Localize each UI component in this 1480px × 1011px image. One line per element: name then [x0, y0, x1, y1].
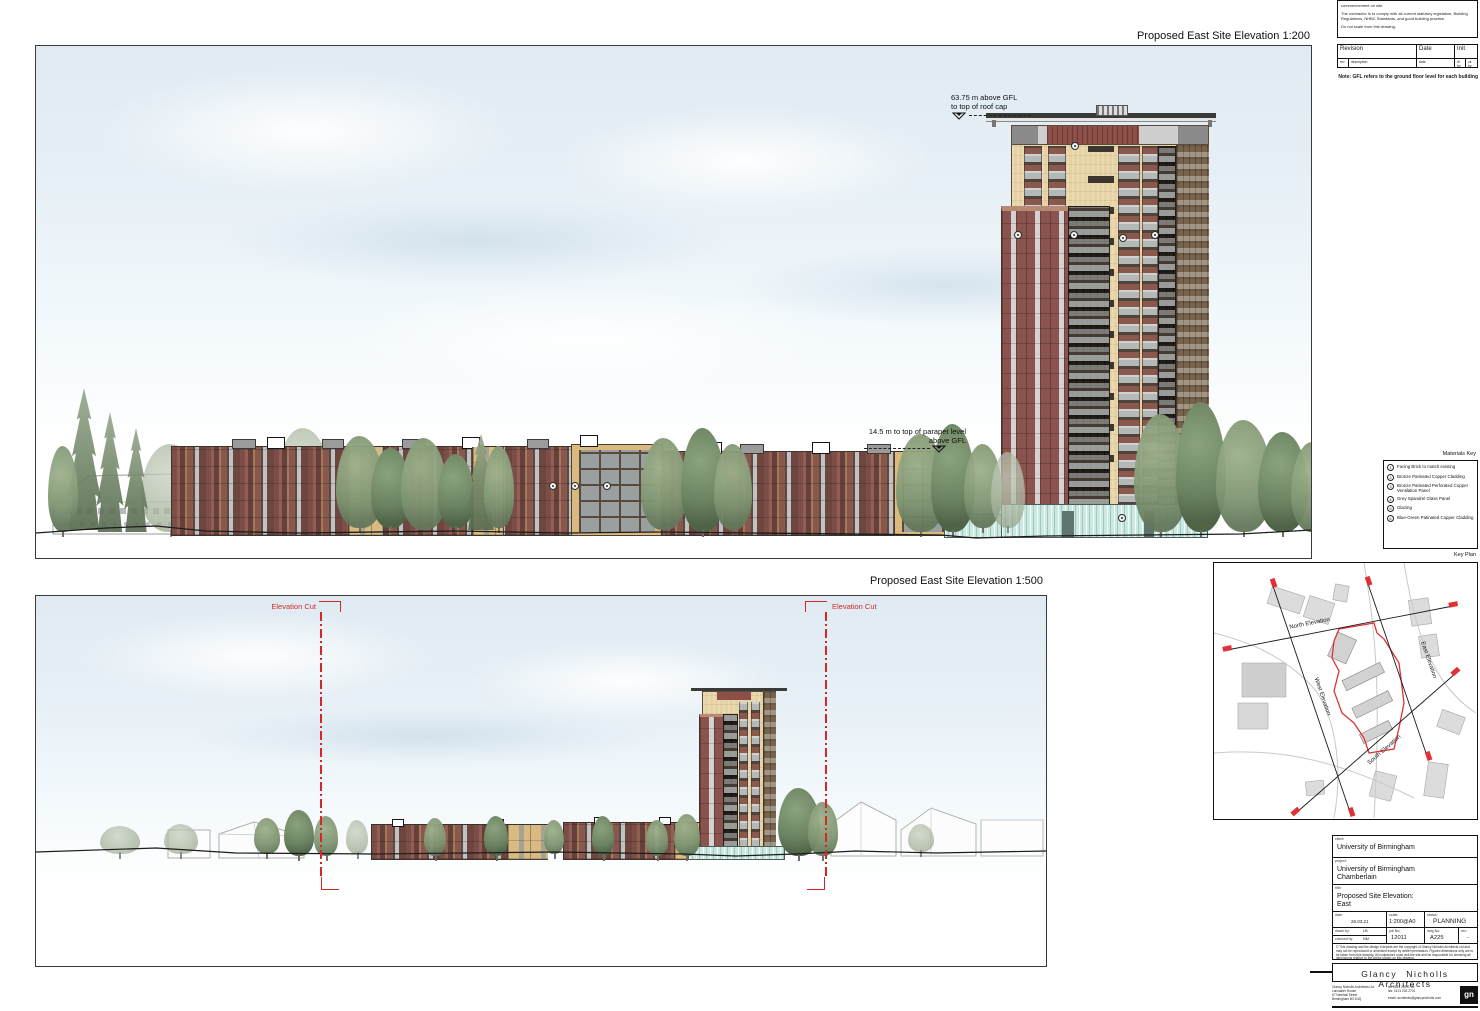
level-marker-icon [932, 445, 946, 453]
material-marker-icon [1119, 234, 1127, 242]
cut-bracket-icon [319, 601, 341, 612]
status-cell: status: PLANNING [1425, 912, 1479, 927]
material-marker-icon [603, 482, 611, 490]
date-scale-status-row: date: 26.03.21 scale: 1:200@A0 status: P… [1333, 912, 1477, 928]
drby-subheader: dr by [1455, 59, 1466, 67]
checked-by-cell: checked by: NM [1333, 936, 1386, 944]
roof-plant-box [580, 435, 598, 447]
roof-plant-box [527, 439, 549, 449]
parapet-line2: above GFL [826, 437, 966, 446]
sky-streak [216, 196, 736, 286]
roof-plant-box [392, 819, 404, 827]
crown-copper-panel [717, 692, 751, 700]
material-marker-icon [1070, 231, 1078, 239]
material-marker-icon [1151, 231, 1159, 239]
roof-vent [1096, 105, 1128, 116]
materials-key-item: 2 Bronze Patinated Copper Cladding [1387, 474, 1474, 481]
key-number-icon: 5 [1387, 505, 1394, 512]
drawn-checked-cell: drawn by: LB checked by: NM [1333, 928, 1387, 943]
description-subheader: description [1349, 59, 1417, 67]
key-plan-title: Key Plan [1380, 552, 1476, 558]
cloud [96, 66, 516, 196]
cut-bracket-icon [807, 877, 825, 890]
key-number-icon: 3 [1387, 483, 1394, 490]
materials-key-item: 4 Grey Spandrel Glass Panel [1387, 496, 1474, 503]
material-marker-icon [549, 482, 557, 490]
materials-key-title: Materials Key [1383, 451, 1476, 457]
elevation-500-title: Proposed East Site Elevation 1:500 [870, 575, 1043, 587]
roof-plant-box [267, 437, 285, 449]
date-subheader: date [1417, 59, 1455, 67]
cloud [76, 611, 436, 701]
note-line: Do not scale from this drawing. [1341, 24, 1474, 29]
rev-value: - [1467, 935, 1469, 941]
cloud [556, 106, 936, 216]
key-plan-svg: North Elevation East Elevation West Elev… [1214, 563, 1476, 818]
job-no-cell: job No: 12011 [1387, 928, 1425, 943]
key-plan-north-label: North Elevation [1289, 617, 1330, 631]
project-name: University of Birmingham Chamberlain [1337, 866, 1415, 882]
key-plan-map: North Elevation East Elevation West Elev… [1213, 562, 1478, 820]
roof-post [992, 120, 996, 127]
firm-phones: tel: 0121 233 2700 fax: 0121 233 2701 em… [1388, 985, 1460, 1006]
materials-key-item: 6 Blue-Green Patinated Copper Cladding [1387, 515, 1474, 522]
gn-logo: gn [1460, 986, 1478, 1004]
key-number-icon: 1 [1387, 464, 1394, 471]
drawn-job-dwg-row: drawn by: LB checked by: NM job No: 1201… [1333, 928, 1477, 944]
tower-roof-fascia [986, 118, 1216, 122]
firm-email: email: architects@glancynicholls.com [1388, 996, 1460, 1000]
elevation-500-drawing: Elevation Cut Elevation Cut [35, 595, 1047, 967]
key-number-icon: 6 [1387, 515, 1394, 522]
tower-glazed-column [723, 714, 738, 850]
key-number-icon: 4 [1387, 496, 1394, 503]
level-marker-icon [952, 112, 966, 120]
general-notes-box: commencement on site. The contractor is … [1337, 0, 1478, 38]
copyright-note: © This drawing and the design it depicts… [1333, 944, 1477, 963]
title-block: client: University of Birmingham project… [1332, 835, 1478, 960]
shaded-corner-column [763, 692, 776, 849]
client-row: client: University of Birmingham [1333, 836, 1477, 858]
drawing-sheet: Proposed East Site Elevation 1:200 [0, 0, 1480, 1011]
elevation-cut-label-right: Elevation Cut [832, 602, 877, 611]
tower-copper-wing [699, 714, 725, 850]
window-strip [751, 702, 760, 849]
drawn-by-value: LB [1363, 929, 1368, 933]
status-value: PLANNING [1433, 918, 1466, 925]
crown-grey-panel [1012, 126, 1038, 144]
elevation-cut-line-right [825, 612, 827, 877]
roof-height-line2: to top of roof cap [951, 103, 1017, 112]
elevation-cut-line-left [320, 612, 322, 877]
crown-grey-panel [1178, 126, 1208, 144]
firm-address: Glancy Nicholls Architects Ltd Lancaster… [1332, 985, 1388, 1006]
materials-key-item: 5 Glazing [1387, 505, 1474, 512]
crown-copper-panel [1047, 126, 1139, 144]
client-name: University of Birmingham [1337, 844, 1415, 852]
job-no-value: 12011 [1391, 935, 1407, 941]
roof-plant-box [232, 439, 256, 449]
ground-line [36, 840, 1046, 866]
elevation-cut-label-left: Elevation Cut [264, 602, 316, 611]
scale-value: 1:200@A0 [1389, 919, 1416, 925]
elevation-200-title: Proposed East Site Elevation 1:200 [1137, 30, 1310, 42]
revision-table: Revision Date Init rev description date … [1337, 44, 1478, 68]
roof-plant-box [867, 444, 891, 454]
gfl-note: Note: GFL refers to the ground floor lev… [1337, 74, 1478, 80]
drawing-title: Proposed Site Elevation: East [1337, 893, 1414, 909]
firm-fax: fax: 0121 233 2701 [1388, 989, 1460, 993]
sky-streak [186, 706, 666, 766]
material-marker-icon [571, 482, 579, 490]
cloud [336, 286, 836, 396]
roof-height-annotation: 63.75 m above GFL to top of roof cap [951, 94, 1017, 111]
cut-bracket-icon [321, 877, 339, 890]
materials-key-item: 1 Facing Brick to match existing [1387, 464, 1474, 471]
material-marker-icon [1014, 231, 1022, 239]
checked-by-value: NM [1363, 937, 1369, 941]
init-header: Init [1455, 45, 1477, 58]
ckby-subheader: ck by [1466, 59, 1477, 67]
date-cell: date: 26.03.21 [1333, 912, 1387, 927]
window-strip [739, 702, 748, 849]
key-number-icon: 2 [1387, 474, 1394, 481]
roof-plant-box [322, 439, 344, 449]
dashed-leader-line [864, 448, 930, 449]
revision-header: Revision [1338, 45, 1417, 58]
note-line: The contractor is to comply with all cur… [1341, 11, 1474, 21]
material-marker-icon [1071, 142, 1079, 150]
dwg-no-cell: dwg No: A225 [1425, 928, 1459, 943]
drawing-title-row: title: Proposed Site Elevation: East [1333, 885, 1477, 912]
cut-bracket-icon [805, 601, 827, 612]
firm-name-box: Glancy Nicholls Architects [1332, 963, 1478, 982]
firm-contact-row: Glancy Nicholls Architects Ltd Lancaster… [1332, 985, 1478, 1008]
note-line: commencement on site. [1341, 3, 1474, 8]
date-value: 26.03.21 [1351, 919, 1369, 924]
ground-line [36, 516, 1311, 546]
materials-key-item: 3 Bronze Patinated Perforated Copper Ven… [1387, 483, 1474, 493]
project-row: project: University of Birmingham Chambe… [1333, 858, 1477, 885]
rev-subheader: rev [1338, 59, 1349, 67]
tower-glazed-column [1068, 206, 1110, 508]
rev-cell: rev: - [1459, 928, 1479, 943]
scale-cell: scale: 1:200@A0 [1387, 912, 1425, 927]
materials-key-box: 1 Facing Brick to match existing 2 Bronz… [1383, 460, 1478, 549]
tower-crown-band [1011, 125, 1209, 145]
dashed-leader-line [969, 115, 1031, 116]
tick-line [1310, 971, 1332, 973]
date-header: Date [1417, 45, 1455, 58]
drawn-by-cell: drawn by: LB [1333, 928, 1386, 936]
elevation-200-drawing: 63.75 m above GFL to top of roof cap 14.… [35, 45, 1312, 559]
dwg-no-value: A225 [1430, 935, 1444, 941]
parapet-annotation: 14.5 m to top of parapet level above GFL [826, 428, 966, 445]
